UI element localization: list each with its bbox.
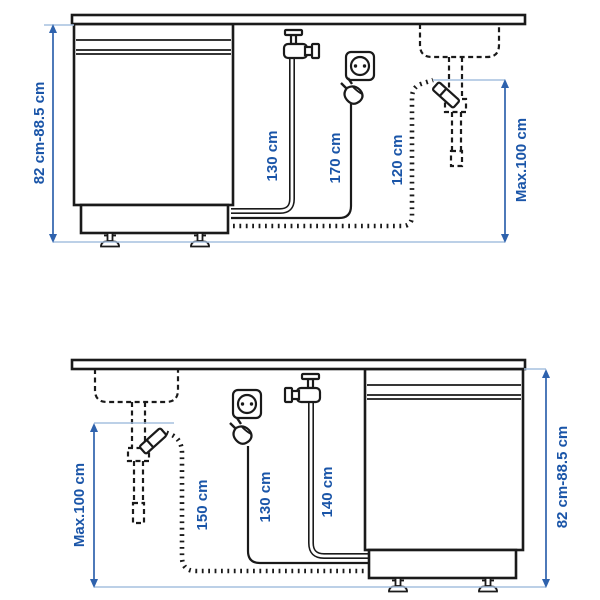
supply-hose-line-inner	[231, 56, 292, 211]
dimension-arrow-max-drain-height	[90, 423, 98, 588]
dishwasher	[74, 24, 233, 247]
top-diagram: 82 cm-88.5 cm 130 cm 170 cm 120 cm Max.1…	[31, 15, 530, 247]
label-drain-hose: 120 cm	[389, 135, 406, 186]
outlet-icon	[346, 52, 374, 80]
bottom-diagram: Max.100 cm 150 cm 130 cm 140 cm 82 cm-88…	[71, 360, 571, 592]
label-max-drain-height: Max.100 cm	[513, 118, 530, 202]
supply-hose-line	[231, 56, 292, 211]
dimension-arrow-max-drain-height	[501, 79, 509, 243]
leveling-foot-icon	[101, 233, 119, 247]
installation-diagram: 82 cm-88.5 cm 130 cm 170 cm 120 cm Max.1…	[0, 0, 600, 600]
dimension-arrow-cabinet-height	[49, 24, 57, 243]
dishwasher-plinth	[81, 205, 228, 233]
faucet-icon	[284, 30, 319, 58]
label-supply-hose: 130 cm	[264, 131, 281, 182]
faucet-icon	[285, 374, 320, 402]
leveling-foot-icon	[191, 233, 209, 247]
dimension-arrow-cabinet-height	[542, 369, 550, 588]
label-cabinet-height: 82 cm-88.5 cm	[554, 426, 571, 529]
diagram-svg: 82 cm-88.5 cm 130 cm 170 cm 120 cm Max.1…	[0, 0, 600, 600]
dishwasher-cabinet	[74, 24, 233, 205]
label-power-cord: 130 cm	[257, 472, 274, 523]
plug-icon	[341, 78, 363, 104]
countertop	[72, 360, 525, 369]
leveling-foot-icon	[389, 578, 407, 592]
countertop	[72, 15, 525, 24]
label-cabinet-height: 82 cm-88.5 cm	[31, 82, 48, 185]
outlet-icon	[233, 390, 261, 418]
plug-icon	[230, 418, 252, 444]
label-max-drain-height: Max.100 cm	[71, 463, 88, 547]
dishwasher-cabinet	[365, 369, 523, 550]
leveling-foot-icon	[479, 578, 497, 592]
sink-outline	[420, 24, 499, 166]
label-supply-hose: 140 cm	[319, 467, 336, 518]
sink-outline	[95, 369, 178, 523]
label-drain-hose: 150 cm	[194, 480, 211, 531]
drain-hose-connector-icon	[139, 428, 166, 454]
dishwasher-plinth	[369, 550, 516, 578]
label-power-cord: 170 cm	[327, 133, 344, 184]
dishwasher	[365, 369, 523, 592]
